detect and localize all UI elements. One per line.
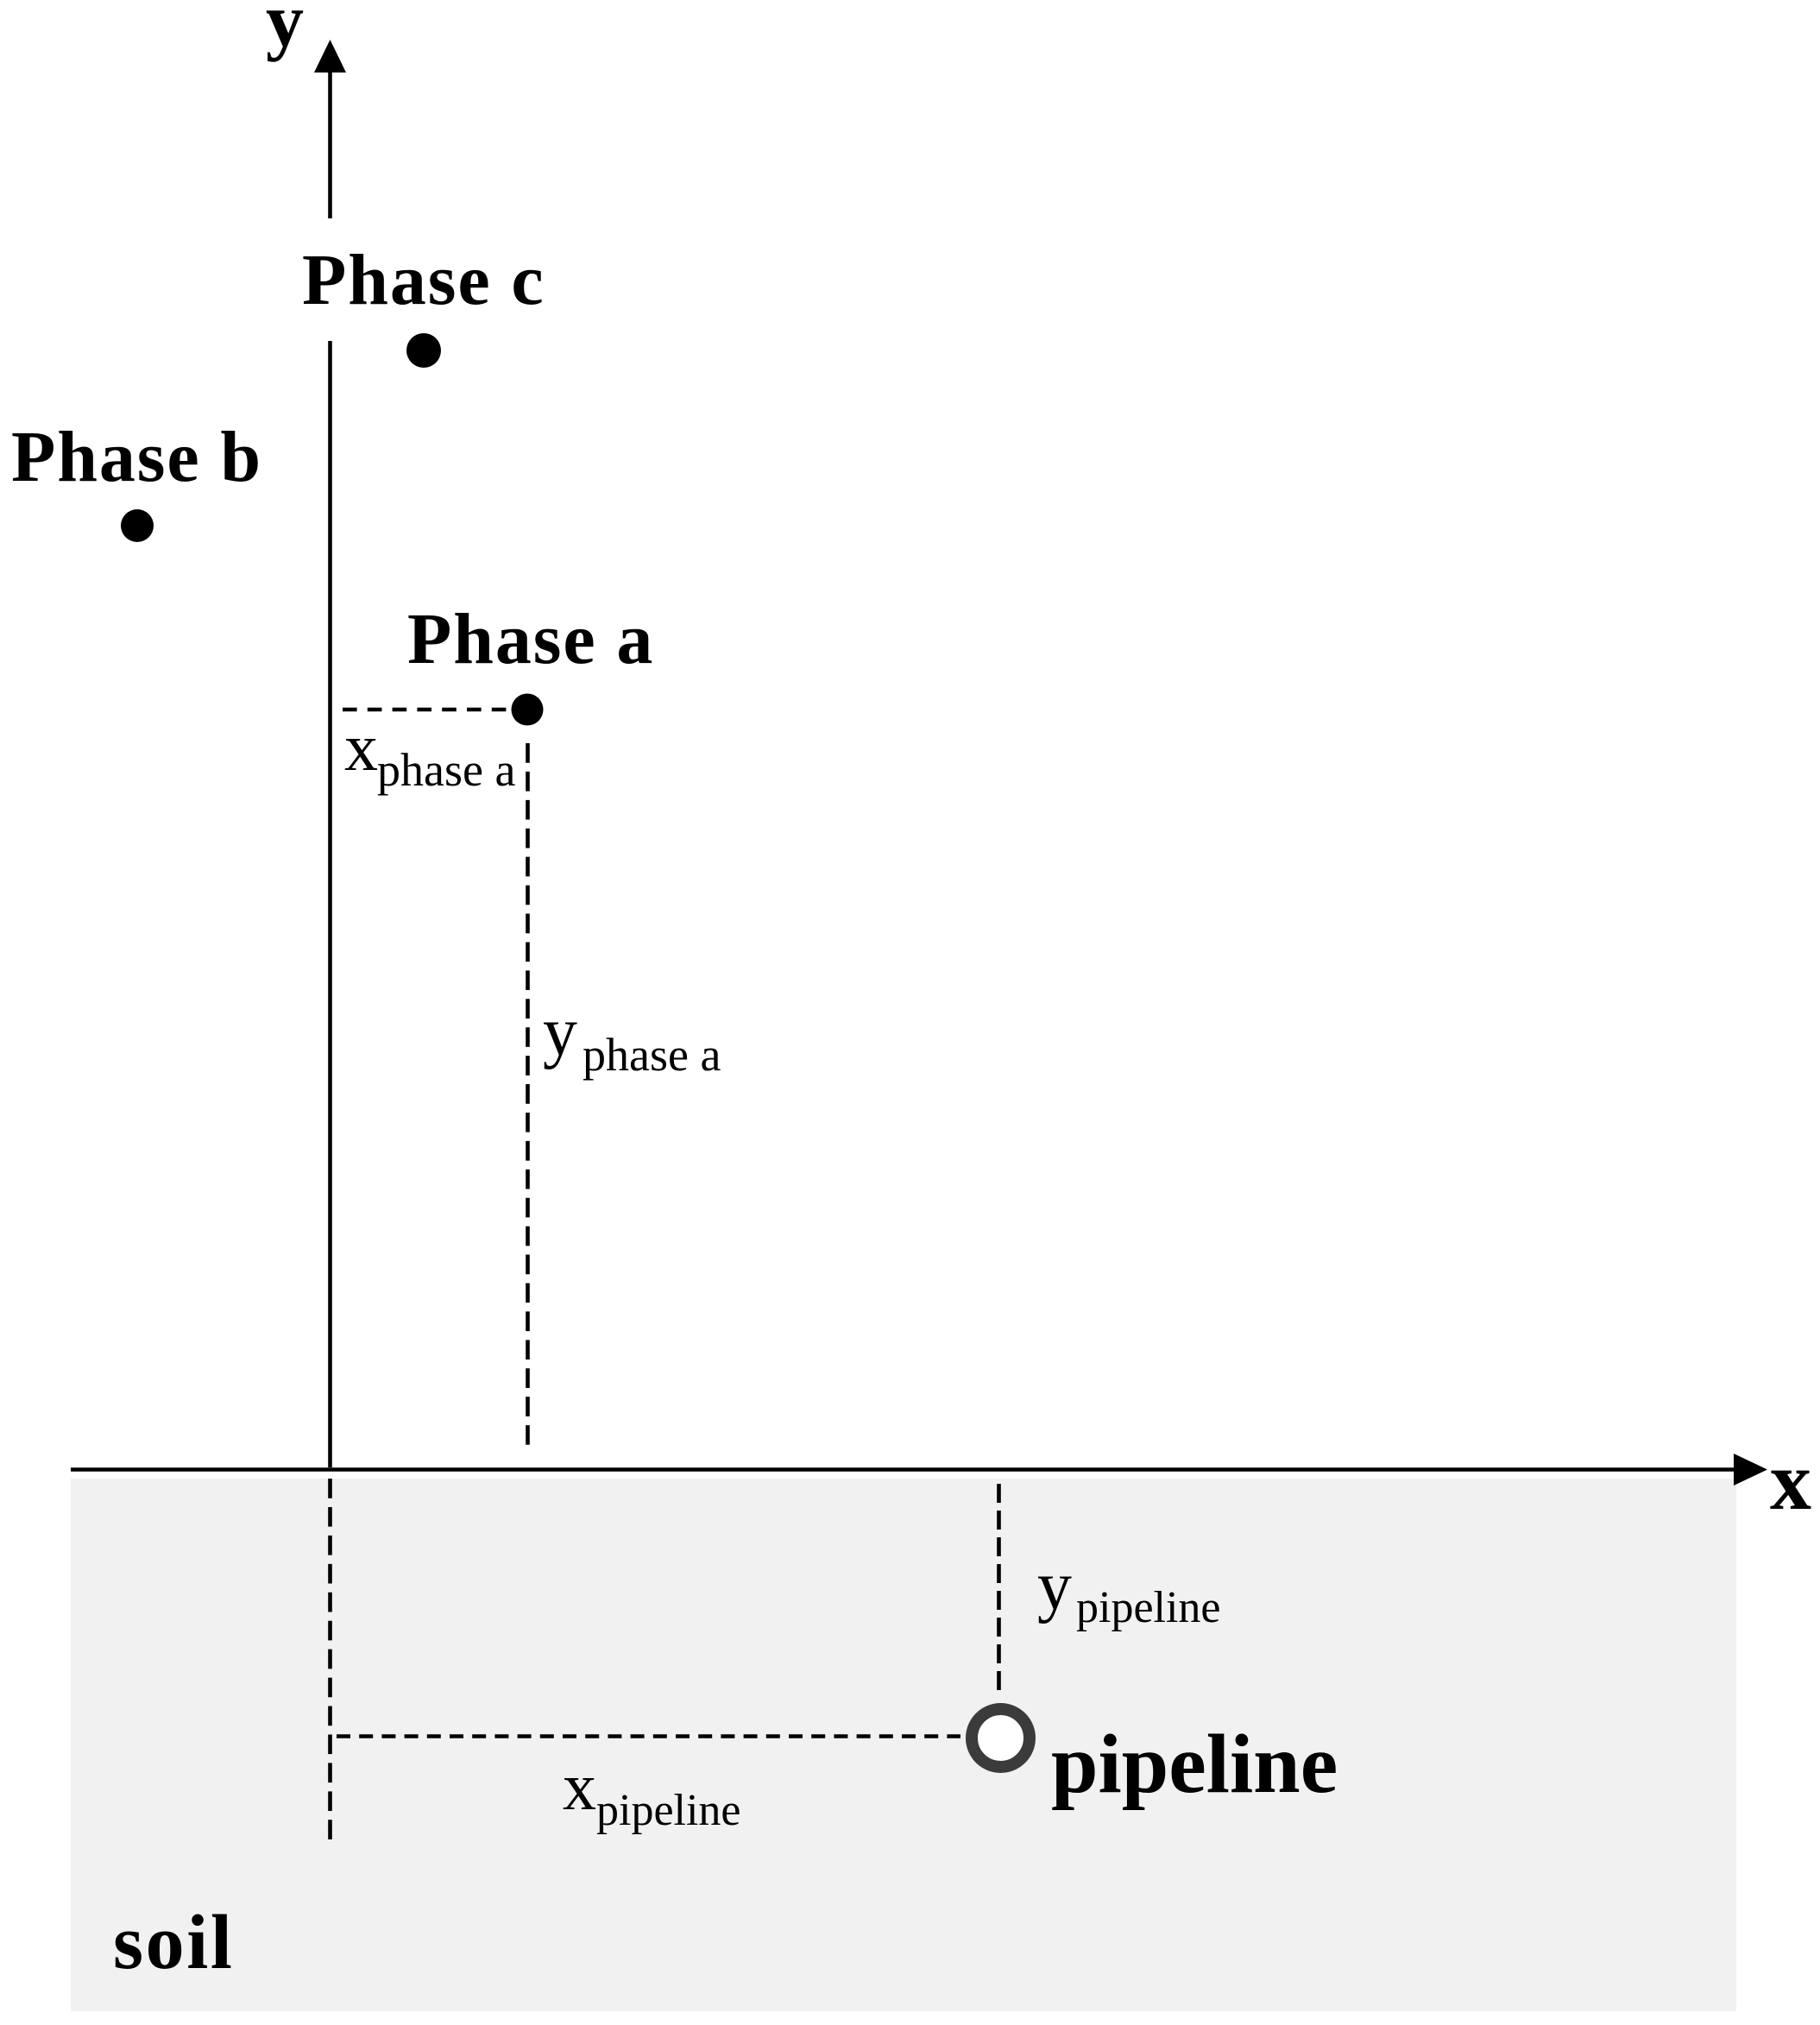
svg-text:pipeline: pipeline: [1076, 1583, 1221, 1632]
svg-text:x: x: [1770, 1435, 1811, 1527]
svg-text:Phase c: Phase c: [302, 240, 545, 320]
svg-text:Phase b: Phase b: [11, 417, 262, 497]
svg-text:x: x: [563, 1749, 596, 1824]
svg-text:y: y: [266, 0, 304, 63]
svg-text:y: y: [543, 994, 577, 1070]
svg-text:pipeline: pipeline: [596, 1786, 741, 1835]
svg-text:pipeline: pipeline: [1051, 1718, 1338, 1811]
svg-text:y: y: [1037, 1549, 1072, 1624]
svg-text:soil: soil: [113, 1900, 234, 1985]
svg-text:phase a: phase a: [377, 744, 515, 796]
svg-text:phase a: phase a: [583, 1029, 721, 1081]
svg-text:x: x: [344, 710, 378, 785]
svg-text:Phase a: Phase a: [407, 599, 654, 679]
